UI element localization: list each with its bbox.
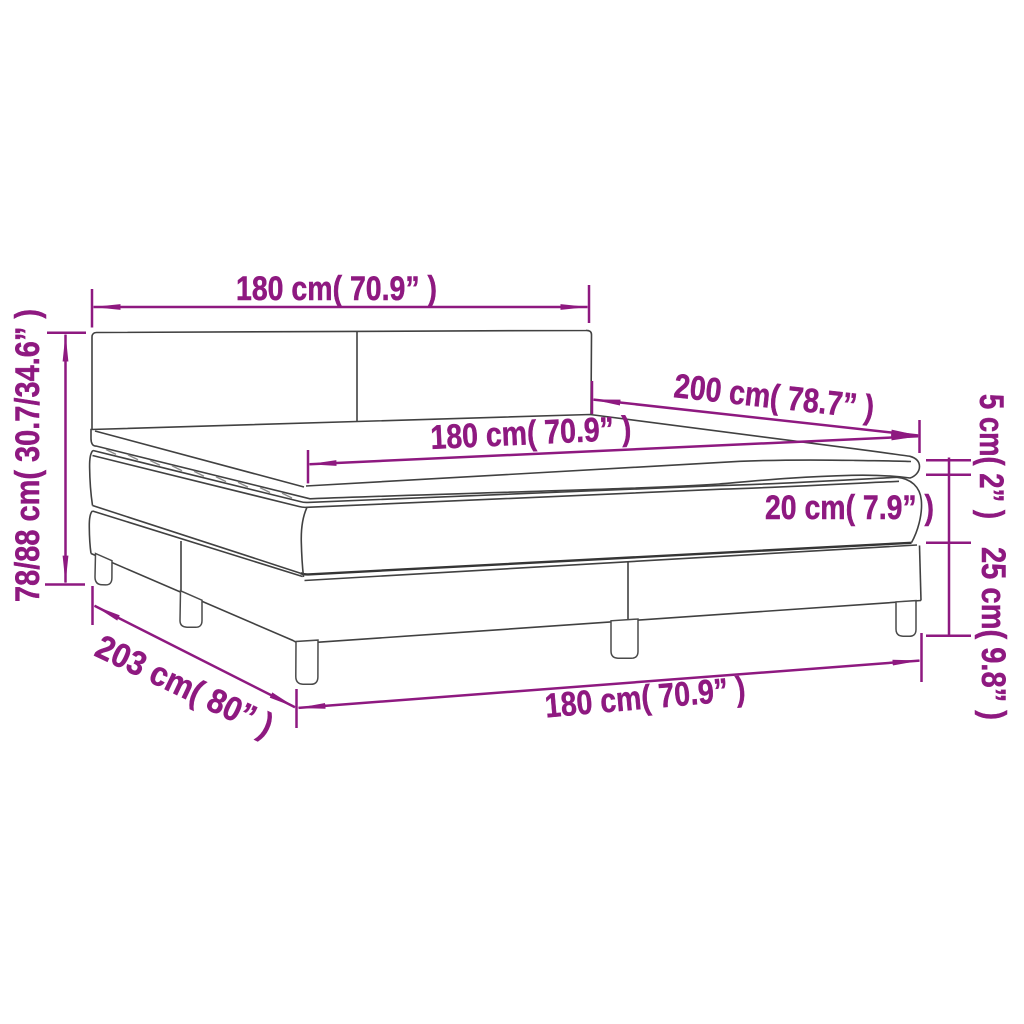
- svg-text:180 cm( 70.9” ): 180 cm( 70.9” ): [236, 270, 437, 308]
- svg-text:5 cm( 2” ): 5 cm( 2” ): [972, 394, 1010, 519]
- svg-text:20 cm( 7.9” ): 20 cm( 7.9” ): [765, 489, 934, 527]
- svg-text:78/88 cm( 30.7/34.6” ): 78/88 cm( 30.7/34.6” ): [9, 309, 47, 602]
- svg-text:25 cm( 9.8” ): 25 cm( 9.8” ): [974, 547, 1012, 720]
